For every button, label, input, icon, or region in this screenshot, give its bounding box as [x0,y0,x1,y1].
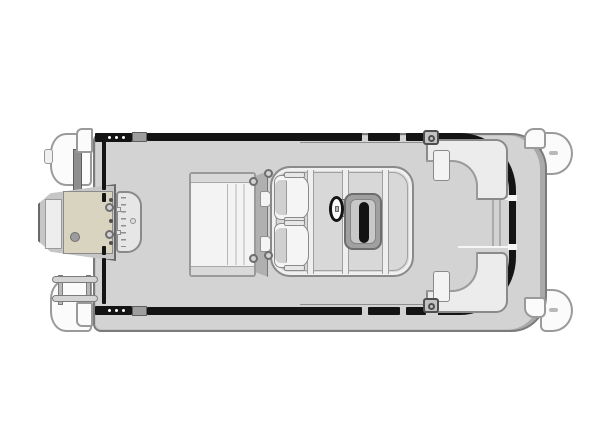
rail-rivet [122,309,125,312]
top-rail-segment [368,133,400,141]
pedestal-base-ring [249,254,258,263]
console-screen [359,202,369,243]
bow-gate-hinge-gap [508,195,517,201]
corner-bumper-top [524,128,546,149]
rail-connector [132,132,147,142]
transom-bolt [109,219,113,223]
transom-fitting-ring [105,230,114,239]
stern-gate-hinge [102,246,106,255]
bow-lounge-armrest [433,150,450,181]
bow-gate-hinge-gap [508,244,517,250]
bench-backrest-seams [227,184,252,265]
chair-armrest [284,220,305,226]
motor-mount-bar [73,149,82,193]
transom-bracket-hole [130,218,136,224]
captain-chair-port [274,175,309,220]
bottom-rail-gate [95,306,132,315]
bench-end-cap [191,266,254,275]
rail-rivet [122,136,125,139]
pedestal-base-ring [264,251,273,260]
transom-bracket-ticks [121,197,126,247]
steering-wheel [329,196,344,222]
module-divider [382,170,389,274]
corner-bumper-bottom [524,297,546,318]
bench-end-cap [191,174,254,183]
swim-ladder-rung [52,295,98,302]
transom-bolt [109,241,113,245]
captain-chair-starboard [274,223,309,268]
cleat-top [423,130,439,145]
cleat-bottom [423,298,439,313]
motor-cowling-strip [45,199,62,249]
bottom-rail-segment [368,307,400,315]
stern-tube-tab [44,149,53,164]
transom-bolt [109,198,113,202]
bow-nose-starboard-weld [549,308,558,312]
chair-armrest [284,265,305,271]
transom-bracket-clip [116,207,121,212]
top-rail-gate [95,133,132,142]
rail-connector [132,306,147,316]
transom-bracket [116,191,142,253]
transom-fitting-ring [105,203,114,212]
stern-fence-segment [102,141,106,190]
motor-cap-circle [70,232,80,242]
stern-fence-segment [102,258,106,304]
chair-back-bolster [275,180,287,215]
transom-bracket-clip [116,230,121,235]
pedestal-base-ring [249,177,258,186]
helm-console [344,193,382,250]
aft-bench [189,172,256,277]
rail-rivet [108,309,111,312]
rail-rivet [115,309,118,312]
chair-back-bolster [275,228,287,263]
chair-armrest [284,172,305,178]
stern-corner-trim [76,128,93,153]
top-rail-segment [147,133,362,141]
rail-rivet [108,136,111,139]
steering-hub [335,206,339,212]
swim-ladder-rung [52,276,98,283]
bow-nose-port-weld [549,151,558,155]
bottom-rail-segment [147,307,362,315]
stern-gate-hinge [102,193,106,202]
stern-corner-trim [76,302,93,327]
pedestal-base-ring [264,169,273,178]
bow-lounge-port [426,139,508,200]
boat-floorplan-diagram [0,0,600,425]
rail-rivet [115,136,118,139]
